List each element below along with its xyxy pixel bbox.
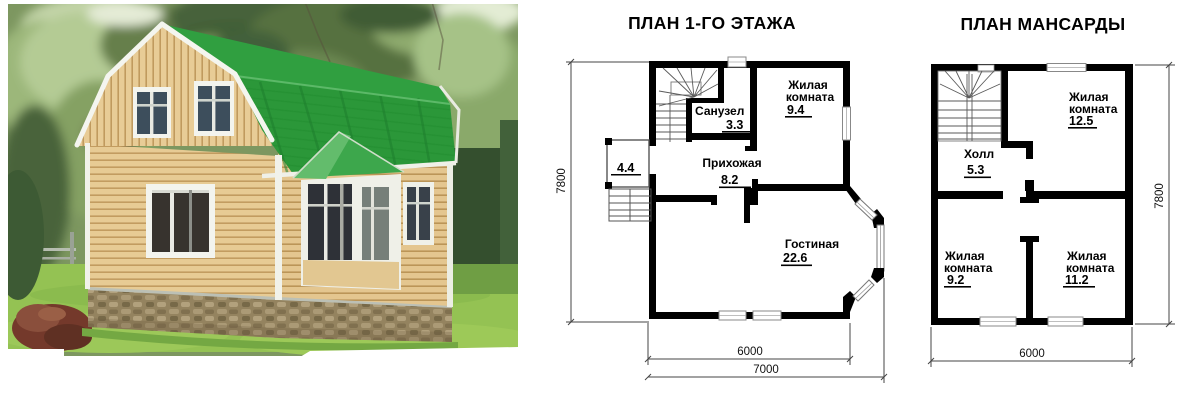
svg-text:12.5: 12.5 (1069, 114, 1093, 128)
svg-text:Гостиная: Гостиная (785, 237, 839, 251)
svg-text:ПЛАН 1-ГО ЭТАЖА: ПЛАН 1-ГО ЭТАЖА (628, 13, 796, 33)
svg-text:7800: 7800 (556, 168, 568, 194)
svg-text:6000: 6000 (737, 346, 763, 358)
svg-text:4.4: 4.4 (617, 161, 634, 175)
svg-text:7000: 7000 (753, 364, 779, 376)
svg-text:9.2: 9.2 (947, 273, 964, 287)
svg-text:7800: 7800 (1154, 183, 1166, 209)
svg-text:комната: комната (786, 90, 835, 104)
svg-text:11.2: 11.2 (1065, 273, 1089, 287)
svg-text:22.6: 22.6 (783, 251, 807, 265)
svg-text:Санузел: Санузел (695, 104, 744, 118)
svg-text:9.4: 9.4 (787, 103, 804, 117)
svg-text:ПЛАН МАНСАРДЫ: ПЛАН МАНСАРДЫ (960, 14, 1125, 34)
svg-text:8.2: 8.2 (721, 173, 738, 187)
svg-text:Прихожая: Прихожая (702, 156, 761, 170)
svg-text:Холл: Холл (964, 147, 994, 161)
svg-text:5.3: 5.3 (967, 163, 984, 177)
svg-text:6000: 6000 (1019, 348, 1045, 360)
svg-text:3.3: 3.3 (726, 118, 743, 132)
